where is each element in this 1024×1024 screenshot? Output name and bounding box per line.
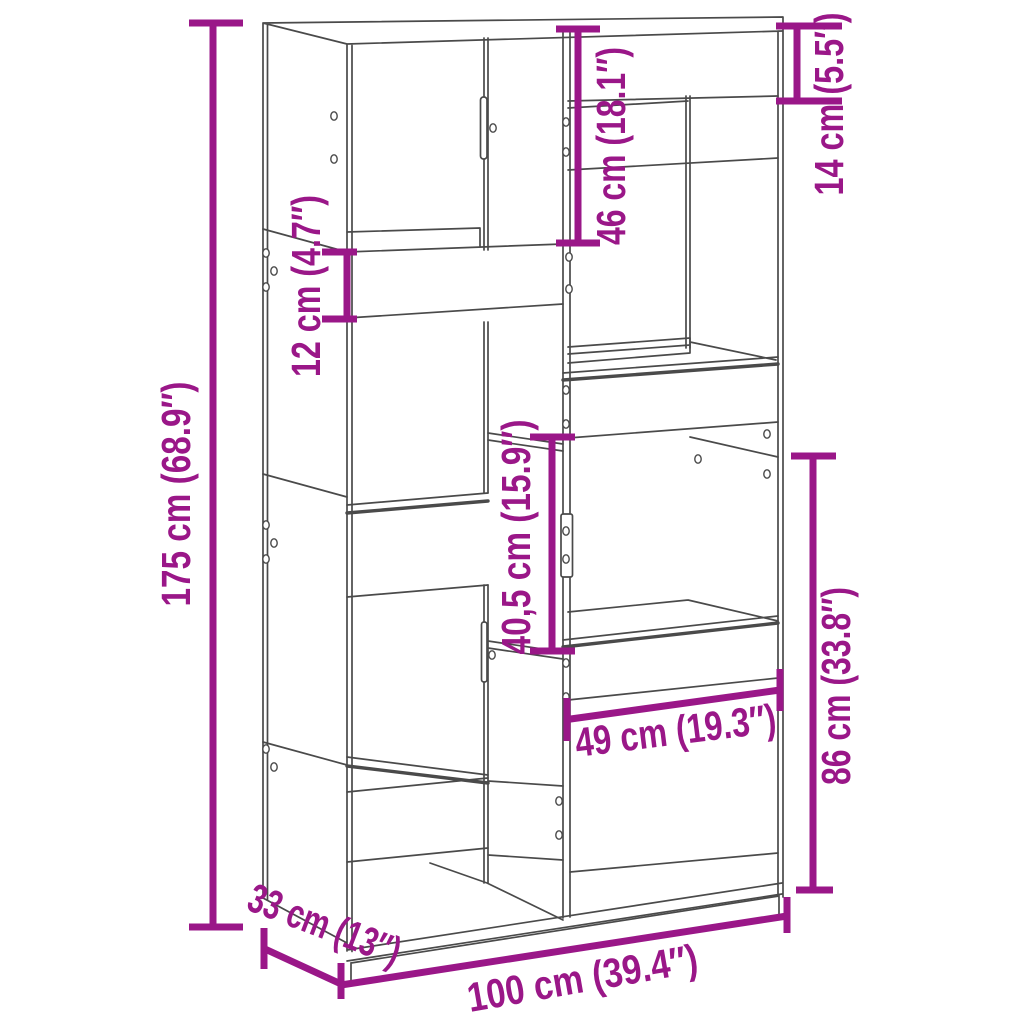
dimension-upper-compartment: 46 cm (18.1″) (556, 29, 634, 245)
bookcase-dimension-diagram: 175 cm (68.9″) 12 cm (4.7″) 46 cm (18.1″… (0, 0, 1024, 1024)
product-dimension-image: 175 cm (68.9″) 12 cm (4.7″) 46 cm (18.1″… (0, 0, 1024, 1024)
dimension-lower-section: 86 cm (33.8″) (791, 456, 859, 890)
right-sub-divider (686, 96, 690, 348)
dimension-label-shelf-gap: 12 cm (4.7″) (283, 195, 329, 377)
left-sub-divider (484, 38, 488, 883)
dimension-label-height: 175 cm (68.9″) (153, 382, 199, 607)
dimension-inner-width: 49 cm (19.3″) (567, 669, 780, 766)
dimension-height: 175 cm (68.9″) (153, 23, 243, 927)
right-shelf-edges (563, 364, 778, 647)
dimension-label-upper-compartment: 46 cm (18.1″) (588, 47, 634, 245)
dimension-label-lower-section: 86 cm (33.8″) (813, 587, 859, 785)
dimension-top-shelf: 14 cm (5.5″) (776, 13, 852, 196)
dimension-label-top-shelf: 14 cm (5.5″) (806, 13, 852, 196)
center-divider (563, 31, 570, 918)
left-shelf-edges (347, 501, 488, 783)
dimension-label-middle-compartment: 40,5 cm (15.9″) (493, 420, 539, 655)
dimension-annotations: 175 cm (68.9″) 12 cm (4.7″) 46 cm (18.1″… (153, 13, 859, 1021)
dimension-shelf-gap: 12 cm (4.7″) (283, 195, 357, 377)
